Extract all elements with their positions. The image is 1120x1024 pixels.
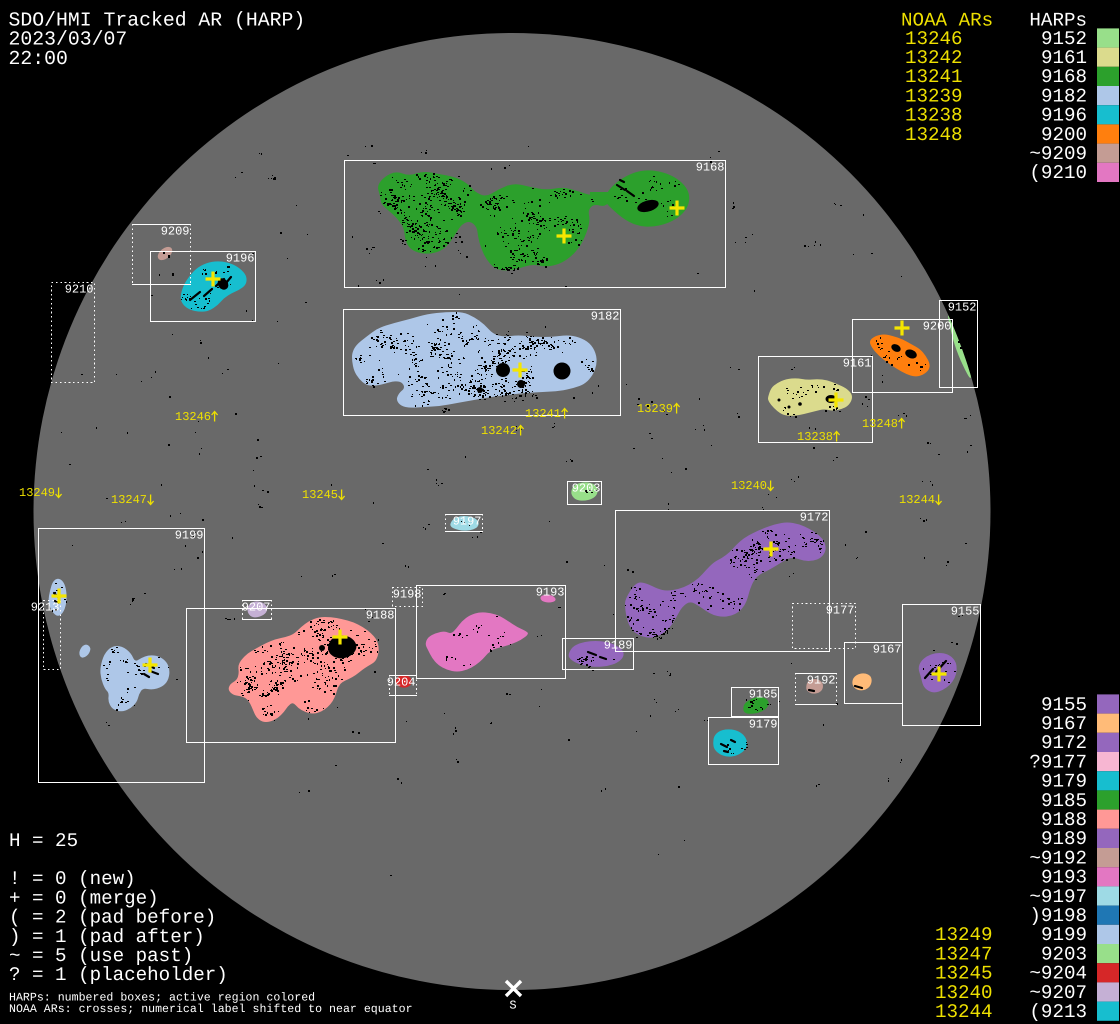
svg-text:13241: 13241 [525, 407, 561, 421]
svg-text:9209: 9209 [161, 225, 190, 239]
svg-text:9213: 9213 [31, 601, 60, 615]
svg-text:13247: 13247 [111, 493, 147, 507]
svg-text:13245: 13245 [302, 488, 338, 502]
svg-text:(9210: (9210 [1029, 162, 1087, 184]
svg-text:13238: 13238 [797, 430, 833, 444]
svg-text:13246: 13246 [175, 410, 211, 424]
svg-text:13242: 13242 [481, 424, 517, 438]
svg-text:22:00: 22:00 [9, 48, 68, 70]
svg-text:9199: 9199 [175, 529, 204, 543]
svg-text:13248: 13248 [905, 124, 963, 146]
svg-text:9161: 9161 [843, 357, 872, 371]
svg-text:9168: 9168 [696, 161, 725, 175]
svg-text:9179: 9179 [749, 718, 778, 732]
svg-text:? = 1 (placeholder): ? = 1 (placeholder) [9, 964, 228, 986]
svg-text:9172: 9172 [800, 511, 829, 525]
svg-text:13244: 13244 [899, 493, 935, 507]
svg-text:S: S [509, 998, 516, 1012]
svg-text:9200: 9200 [923, 320, 952, 334]
svg-text:13248: 13248 [862, 417, 898, 431]
svg-text:(9213: (9213 [1029, 1001, 1087, 1023]
svg-text:9185: 9185 [749, 688, 778, 702]
svg-text:13240: 13240 [731, 479, 767, 493]
svg-text:NOAA ARs: crosses; numerical l: NOAA ARs: crosses; numerical label shift… [9, 1003, 413, 1016]
svg-text:9192: 9192 [807, 674, 836, 688]
svg-text:9155: 9155 [951, 605, 980, 619]
svg-text:H = 25: H = 25 [9, 830, 78, 852]
svg-text:9203: 9203 [572, 482, 601, 496]
svg-text:9167: 9167 [873, 643, 902, 657]
svg-text:9207: 9207 [242, 601, 271, 615]
svg-text:9152: 9152 [948, 301, 977, 315]
svg-text:9189: 9189 [604, 639, 633, 653]
svg-text:9193: 9193 [536, 586, 565, 600]
svg-text:9182: 9182 [591, 310, 620, 324]
svg-text:9177: 9177 [826, 604, 855, 618]
svg-text:9197: 9197 [453, 515, 482, 529]
svg-text:13249: 13249 [19, 486, 55, 500]
svg-text:9198: 9198 [393, 588, 422, 602]
svg-text:9188: 9188 [366, 609, 395, 623]
svg-text:9196: 9196 [226, 252, 255, 266]
svg-text:13239: 13239 [637, 402, 673, 416]
svg-text:9210: 9210 [65, 283, 94, 297]
svg-text:9204: 9204 [387, 676, 416, 690]
svg-text:13244: 13244 [935, 1001, 993, 1023]
